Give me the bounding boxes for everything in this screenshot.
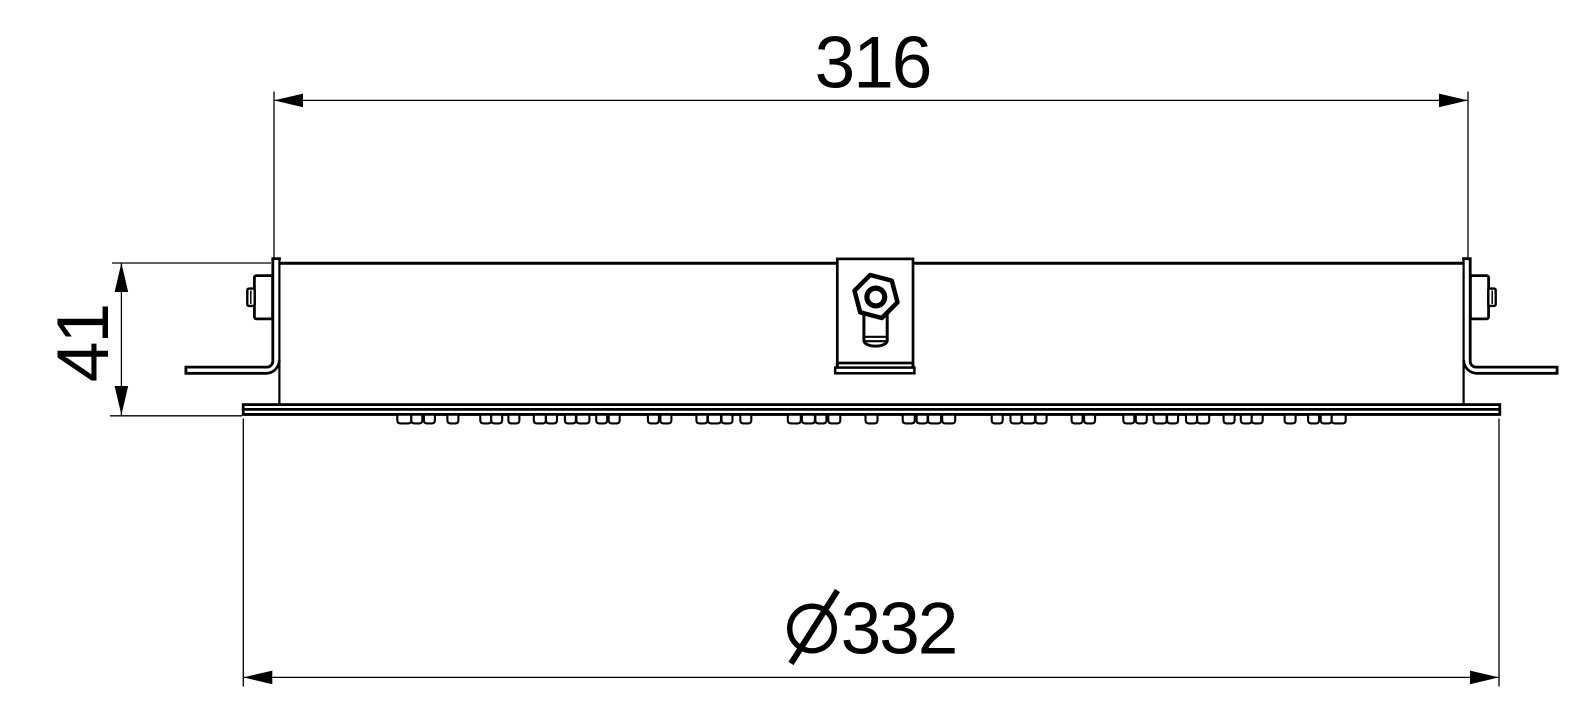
svg-text:316: 316 (815, 23, 931, 104)
svg-text:332: 332 (841, 589, 957, 670)
svg-text:41: 41 (43, 305, 124, 382)
